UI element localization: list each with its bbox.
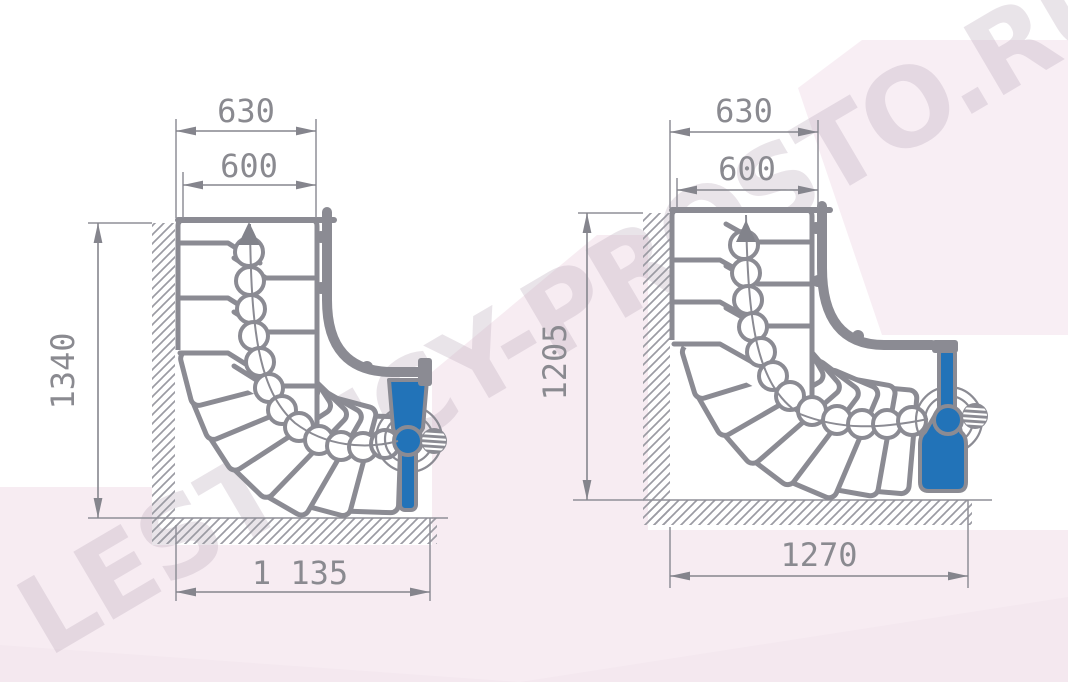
rail-end-cap — [932, 340, 958, 353]
dimension-label-width-inner-right: 600 — [718, 150, 776, 188]
rail-end-cap — [418, 358, 432, 386]
wall-hatch-left — [152, 223, 175, 543]
stair-plan-drawing: LESTNICY-PROSTO.RU — [0, 0, 1068, 682]
dimension-label-footprint-left: 1 135 — [252, 554, 348, 592]
dimension-label-height-right: 1205 — [536, 323, 574, 400]
stair-plan-page: LESTNICY-PROSTO.RU — [0, 0, 1068, 682]
floor-hatch — [648, 500, 972, 525]
newel-post-module — [394, 427, 422, 455]
dimension-label-width-top-left: 630 — [217, 92, 275, 130]
newel-post-stem — [939, 350, 955, 410]
newel-post-module — [934, 406, 962, 434]
dimension-label-footprint-right: 1270 — [780, 536, 857, 574]
wall-hatch-left — [643, 213, 670, 525]
dimension-label-width-top-right: 630 — [715, 92, 773, 130]
dimension-label-height-left: 1340 — [44, 332, 82, 409]
floor-hatch — [157, 518, 437, 544]
dimension-label-width-inner-left: 600 — [220, 147, 278, 185]
